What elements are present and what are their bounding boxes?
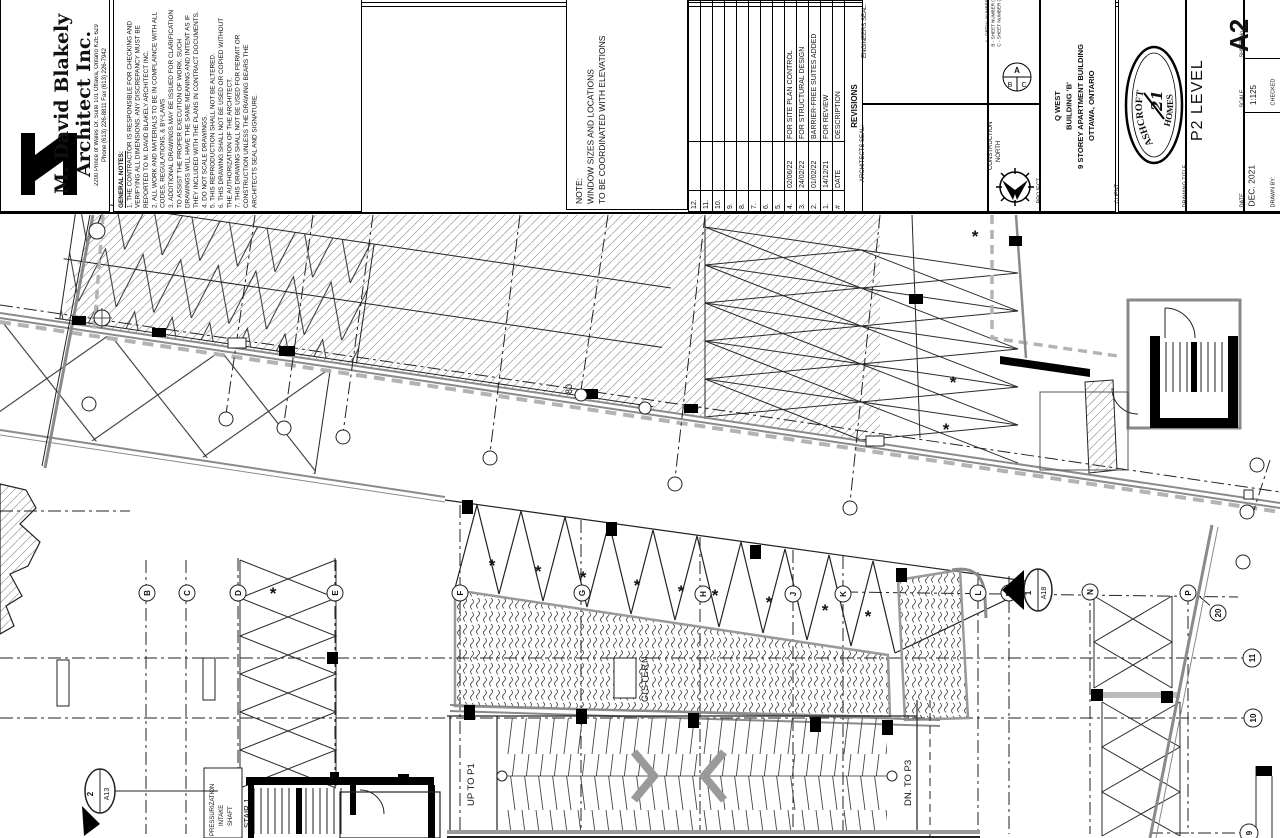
- firm-address: 2200 Prince of Wales Dr. Suite 101 Ottaw…: [94, 0, 109, 210]
- svg-text:*: *: [270, 584, 277, 603]
- checked-label: CHECKED: [1272, 79, 1278, 106]
- svg-text:D: D: [234, 590, 243, 596]
- svg-text:C: C: [1021, 82, 1026, 89]
- svg-text:*: *: [766, 593, 773, 612]
- svg-text:*: *: [580, 568, 587, 587]
- sheet-cell-divider-1: [1244, 58, 1280, 59]
- svg-text:L: L: [974, 590, 983, 595]
- svg-text:20: 20: [1214, 608, 1223, 617]
- svg-text:*: *: [950, 373, 957, 392]
- revisions-table: 12. 11. 10. 9. 8. 7. 6. 5. 4.02/06/22FOR…: [688, 0, 864, 212]
- architects-seal-box: [862, 104, 988, 212]
- svg-text:*: *: [972, 227, 979, 246]
- svg-text:*: *: [865, 607, 872, 626]
- svg-text:G: G: [578, 590, 587, 596]
- date-value: DEC. 2021: [1248, 165, 1257, 207]
- ramp-up-label: UP TO P1: [466, 763, 477, 806]
- ramp-down-label: DN. TO P3: [903, 760, 914, 806]
- legend-line-a: A - DETAIL NUMBER: [985, 0, 990, 43]
- architects-seal-label: ARCHITECTS SEAL:: [860, 125, 866, 182]
- left-vertical-stall-band: [240, 560, 336, 788]
- svg-text:*: *: [535, 562, 542, 581]
- svg-text:A13: A13: [104, 788, 111, 801]
- engineers-seal-box: [862, 0, 988, 104]
- drawing-sheet: CISTERN: [0, 0, 1280, 838]
- dim-80-label: 80: [564, 384, 574, 394]
- client-label: CLIENT: [1116, 184, 1122, 204]
- stair1-label: STAIR 1: [243, 798, 252, 828]
- press-shaft-label-2: INTAKE: [219, 805, 225, 826]
- svg-text:*: *: [678, 582, 685, 601]
- svg-text:*: *: [822, 601, 829, 620]
- legend-line-b: B - SHEET NUMBER (DETAIL REQ'D): [991, 0, 996, 47]
- ashcroft-homes-logo: ASHCROFT HOMES 21: [1122, 40, 1186, 170]
- section-marker-a13: 2 A13: [82, 769, 218, 836]
- cistern-label: CISTERN: [640, 655, 650, 702]
- project-text: Q WEST BUILDING 'B' 9 STOREY APARTMENT B…: [1052, 4, 1104, 208]
- date-label: DATE: [1241, 193, 1247, 207]
- svg-text:1: 1: [1024, 590, 1033, 595]
- drawing-title-label: DRAWING TITLE: [1184, 165, 1190, 208]
- svg-text:*: *: [634, 576, 641, 595]
- drawn-by-label: DRAWN BY:: [1272, 177, 1278, 208]
- right-vertical-stall-bands: [1094, 525, 1272, 838]
- engineers-seal-label: ENGINEERS SEAL:: [862, 4, 868, 58]
- svg-text:B: B: [1008, 82, 1013, 89]
- window-note: NOTE: WINDOW SIZES AND LOCATIONS TO BE C…: [574, 2, 680, 204]
- scale-label: SCALE: [1241, 89, 1247, 107]
- general-notes: GENERAL NOTES: 1. THE CONTRACTOR IS RESP…: [118, 2, 358, 208]
- svg-text:B: B: [143, 590, 152, 596]
- project-label: PROJECT: [1038, 178, 1044, 204]
- press-shaft-label-1: PRESSURIZATION: [210, 784, 216, 836]
- north-arrow-icon: [994, 166, 1036, 208]
- revision-cloud-hatch-blob: [0, 484, 40, 634]
- svg-text:H: H: [699, 591, 708, 597]
- svg-text:9: 9: [1245, 830, 1254, 835]
- north-label-2: NORTH: [996, 141, 1002, 162]
- north-label-1: CONSTRUCTION: [988, 122, 994, 170]
- firm-name: M. David Blakely Architect Inc.: [52, 0, 98, 208]
- svg-text:K: K: [839, 591, 848, 597]
- ramp: UP TO P1 DN. TO P3: [447, 700, 980, 838]
- revisions-table-wrap: 12. 11. 10. 9. 8. 7. 6. 5. 4.02/06/22FOR…: [688, 0, 860, 212]
- scale-value: 1:125: [1250, 85, 1258, 105]
- svg-text:*: *: [943, 420, 950, 439]
- svg-text:A: A: [1014, 66, 1020, 75]
- press-shaft-label-3: SHAFT: [228, 806, 234, 826]
- svg-text:E: E: [331, 590, 340, 596]
- svg-text:*: *: [712, 586, 719, 605]
- svg-text:2: 2: [86, 791, 95, 796]
- svg-text:10: 10: [1249, 713, 1258, 722]
- detail-callout-symbol: A B C: [1000, 60, 1034, 94]
- svg-text:A18: A18: [1041, 587, 1048, 600]
- svg-text:C: C: [183, 590, 192, 596]
- svg-text:N: N: [1086, 589, 1095, 595]
- svg-text:*: *: [489, 556, 496, 575]
- sheet-cell-divider-2: [1244, 112, 1280, 113]
- svg-text:P: P: [1184, 590, 1193, 596]
- svg-text:11: 11: [1248, 653, 1257, 662]
- sheet-no-value: A2: [1226, 19, 1252, 52]
- svg-text:J: J: [789, 592, 798, 596]
- drawing-title-value: P2 LEVEL: [1190, 59, 1206, 141]
- svg-text:F: F: [456, 590, 465, 595]
- legend-line-c: C - SHEET NUMBER (DETAIL LOCATION): [997, 0, 1002, 47]
- title-strip-bottom-line: [0, 212, 1280, 214]
